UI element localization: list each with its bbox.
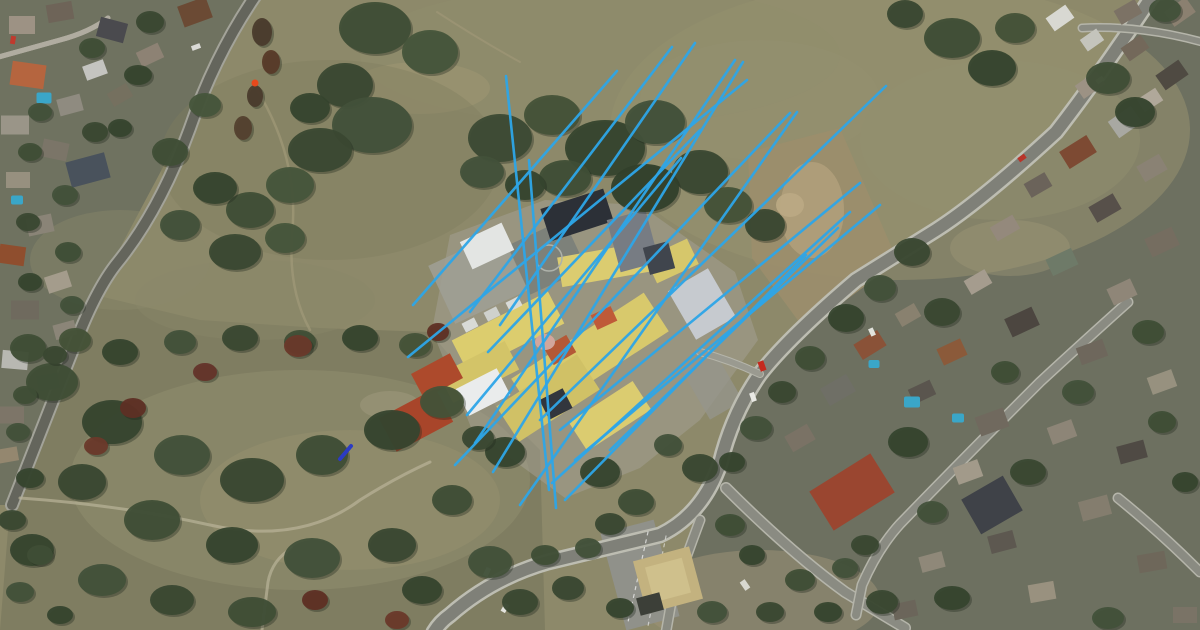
tree-canopy (43, 346, 67, 364)
tree-canopy (150, 585, 194, 615)
tree-canopy (252, 18, 272, 46)
tree-canopy (745, 209, 785, 241)
house-roof (9, 61, 46, 89)
tree-canopy (102, 339, 138, 365)
tree-canopy (342, 325, 378, 351)
house-roof (1173, 607, 1197, 623)
tree-canopy (756, 602, 784, 622)
tree-canopy (888, 427, 928, 457)
tree-canopy (154, 435, 210, 475)
tree-canopy (59, 328, 91, 352)
tree-canopy (502, 589, 538, 615)
house-roof (0, 407, 24, 424)
tree-canopy (6, 423, 30, 441)
tree-canopy (505, 170, 545, 200)
tree-canopy (1062, 380, 1094, 404)
tree-canopy (152, 138, 188, 166)
tree-canopy (832, 558, 858, 578)
tree-canopy (851, 535, 879, 555)
tree-canopy (814, 602, 842, 622)
tree-canopy (368, 528, 416, 562)
tree-canopy (290, 93, 330, 123)
house-roof (0, 244, 26, 266)
tree-canopy (6, 582, 34, 602)
tree-canopy (284, 538, 340, 578)
tree-canopy (795, 346, 825, 370)
tree-canopy (1172, 472, 1198, 492)
tree-canopy (595, 513, 625, 535)
tree-canopy (52, 185, 78, 205)
swimming-pool (952, 414, 964, 423)
tree-canopy (193, 172, 237, 204)
tree-canopy (13, 386, 37, 404)
tree-canopy (917, 501, 947, 523)
tree-canopy (284, 335, 312, 357)
tree-canopy (55, 242, 81, 262)
tree-canopy (552, 576, 584, 600)
aerial-imagery (0, 0, 1200, 630)
tree-canopy (785, 569, 815, 591)
tree-canopy (1086, 62, 1130, 94)
tree-canopy (1148, 411, 1176, 433)
tree-canopy (924, 18, 980, 58)
tree-canopy (768, 381, 796, 403)
tree-canopy (468, 546, 512, 578)
tree-canopy (120, 398, 146, 418)
tree-canopy (206, 527, 258, 563)
tree-canopy (1132, 320, 1164, 344)
tree-canopy (28, 103, 52, 121)
tree-canopy (887, 0, 923, 28)
tree-canopy (288, 128, 352, 172)
tree-canopy (364, 410, 420, 450)
tree-canopy (704, 187, 752, 223)
tree-canopy (160, 210, 200, 240)
tree-canopy (715, 514, 745, 536)
tree-canopy (995, 13, 1035, 43)
tree-canopy (18, 273, 42, 291)
dirt-patch (776, 193, 804, 217)
ground-marker-dot (252, 80, 259, 87)
tree-canopy (531, 545, 559, 565)
tree-canopy (124, 65, 152, 85)
tree-canopy (266, 167, 314, 203)
tree-canopy (654, 434, 682, 456)
tree-canopy (262, 50, 280, 74)
tree-canopy (828, 304, 864, 332)
tree-canopy (580, 457, 620, 487)
tree-canopy (60, 296, 84, 314)
tree-canopy (189, 93, 221, 117)
tree-canopy (58, 464, 106, 500)
tree-canopy (618, 489, 654, 515)
tree-canopy (296, 435, 348, 475)
tree-canopy (108, 119, 132, 137)
tree-canopy (234, 116, 252, 140)
tree-canopy (697, 601, 727, 623)
tree-canopy (968, 50, 1016, 86)
tree-canopy (402, 576, 442, 604)
tree-canopy (10, 334, 46, 362)
tree-canopy (432, 485, 472, 515)
tree-canopy (1092, 607, 1124, 629)
tree-canopy (575, 538, 601, 558)
tree-canopy (606, 598, 634, 618)
tree-canopy (82, 122, 108, 142)
tree-canopy (739, 545, 765, 565)
tree-canopy (136, 11, 164, 33)
tree-canopy (740, 416, 772, 440)
tree-canopy (18, 143, 42, 161)
tree-canopy (934, 586, 970, 610)
tree-canopy (220, 458, 284, 502)
tree-canopy (719, 452, 745, 472)
tree-canopy (399, 333, 431, 357)
tree-canopy (385, 611, 409, 629)
tree-canopy (1010, 459, 1046, 485)
tree-canopy (16, 468, 44, 488)
tree-canopy (228, 597, 276, 627)
house-roof (1, 116, 29, 135)
tree-canopy (265, 223, 305, 253)
tree-canopy (164, 330, 196, 354)
tree-canopy (247, 85, 263, 107)
swimming-pool (11, 196, 23, 205)
tree-canopy (79, 38, 105, 58)
swimming-pool (869, 360, 880, 368)
tree-canopy (460, 156, 504, 188)
tree-canopy (222, 325, 258, 351)
swimming-pool (904, 397, 920, 408)
tree-canopy (866, 590, 898, 614)
house-roof (9, 16, 35, 34)
tree-canopy (78, 564, 126, 596)
tree-canopy (864, 275, 896, 301)
tree-canopy (16, 213, 40, 231)
tree-canopy (420, 386, 464, 418)
tree-canopy (991, 361, 1019, 383)
tree-canopy (193, 363, 217, 381)
tree-canopy (894, 238, 930, 266)
satellite-map-view[interactable] (0, 0, 1200, 630)
tree-canopy (682, 454, 718, 482)
tree-canopy (84, 437, 108, 455)
tree-canopy (402, 30, 458, 74)
house-roof (6, 172, 30, 188)
tree-canopy (27, 545, 53, 565)
tree-canopy (339, 2, 411, 54)
tree-canopy (124, 500, 180, 540)
tree-canopy (1115, 97, 1155, 127)
tree-canopy (524, 95, 580, 135)
swimming-pool (37, 93, 52, 104)
tree-canopy (468, 114, 532, 162)
house-roof (11, 301, 39, 320)
tree-canopy (47, 606, 73, 624)
tree-canopy (209, 234, 261, 270)
tree-canopy (302, 590, 328, 610)
tree-canopy (924, 298, 960, 326)
